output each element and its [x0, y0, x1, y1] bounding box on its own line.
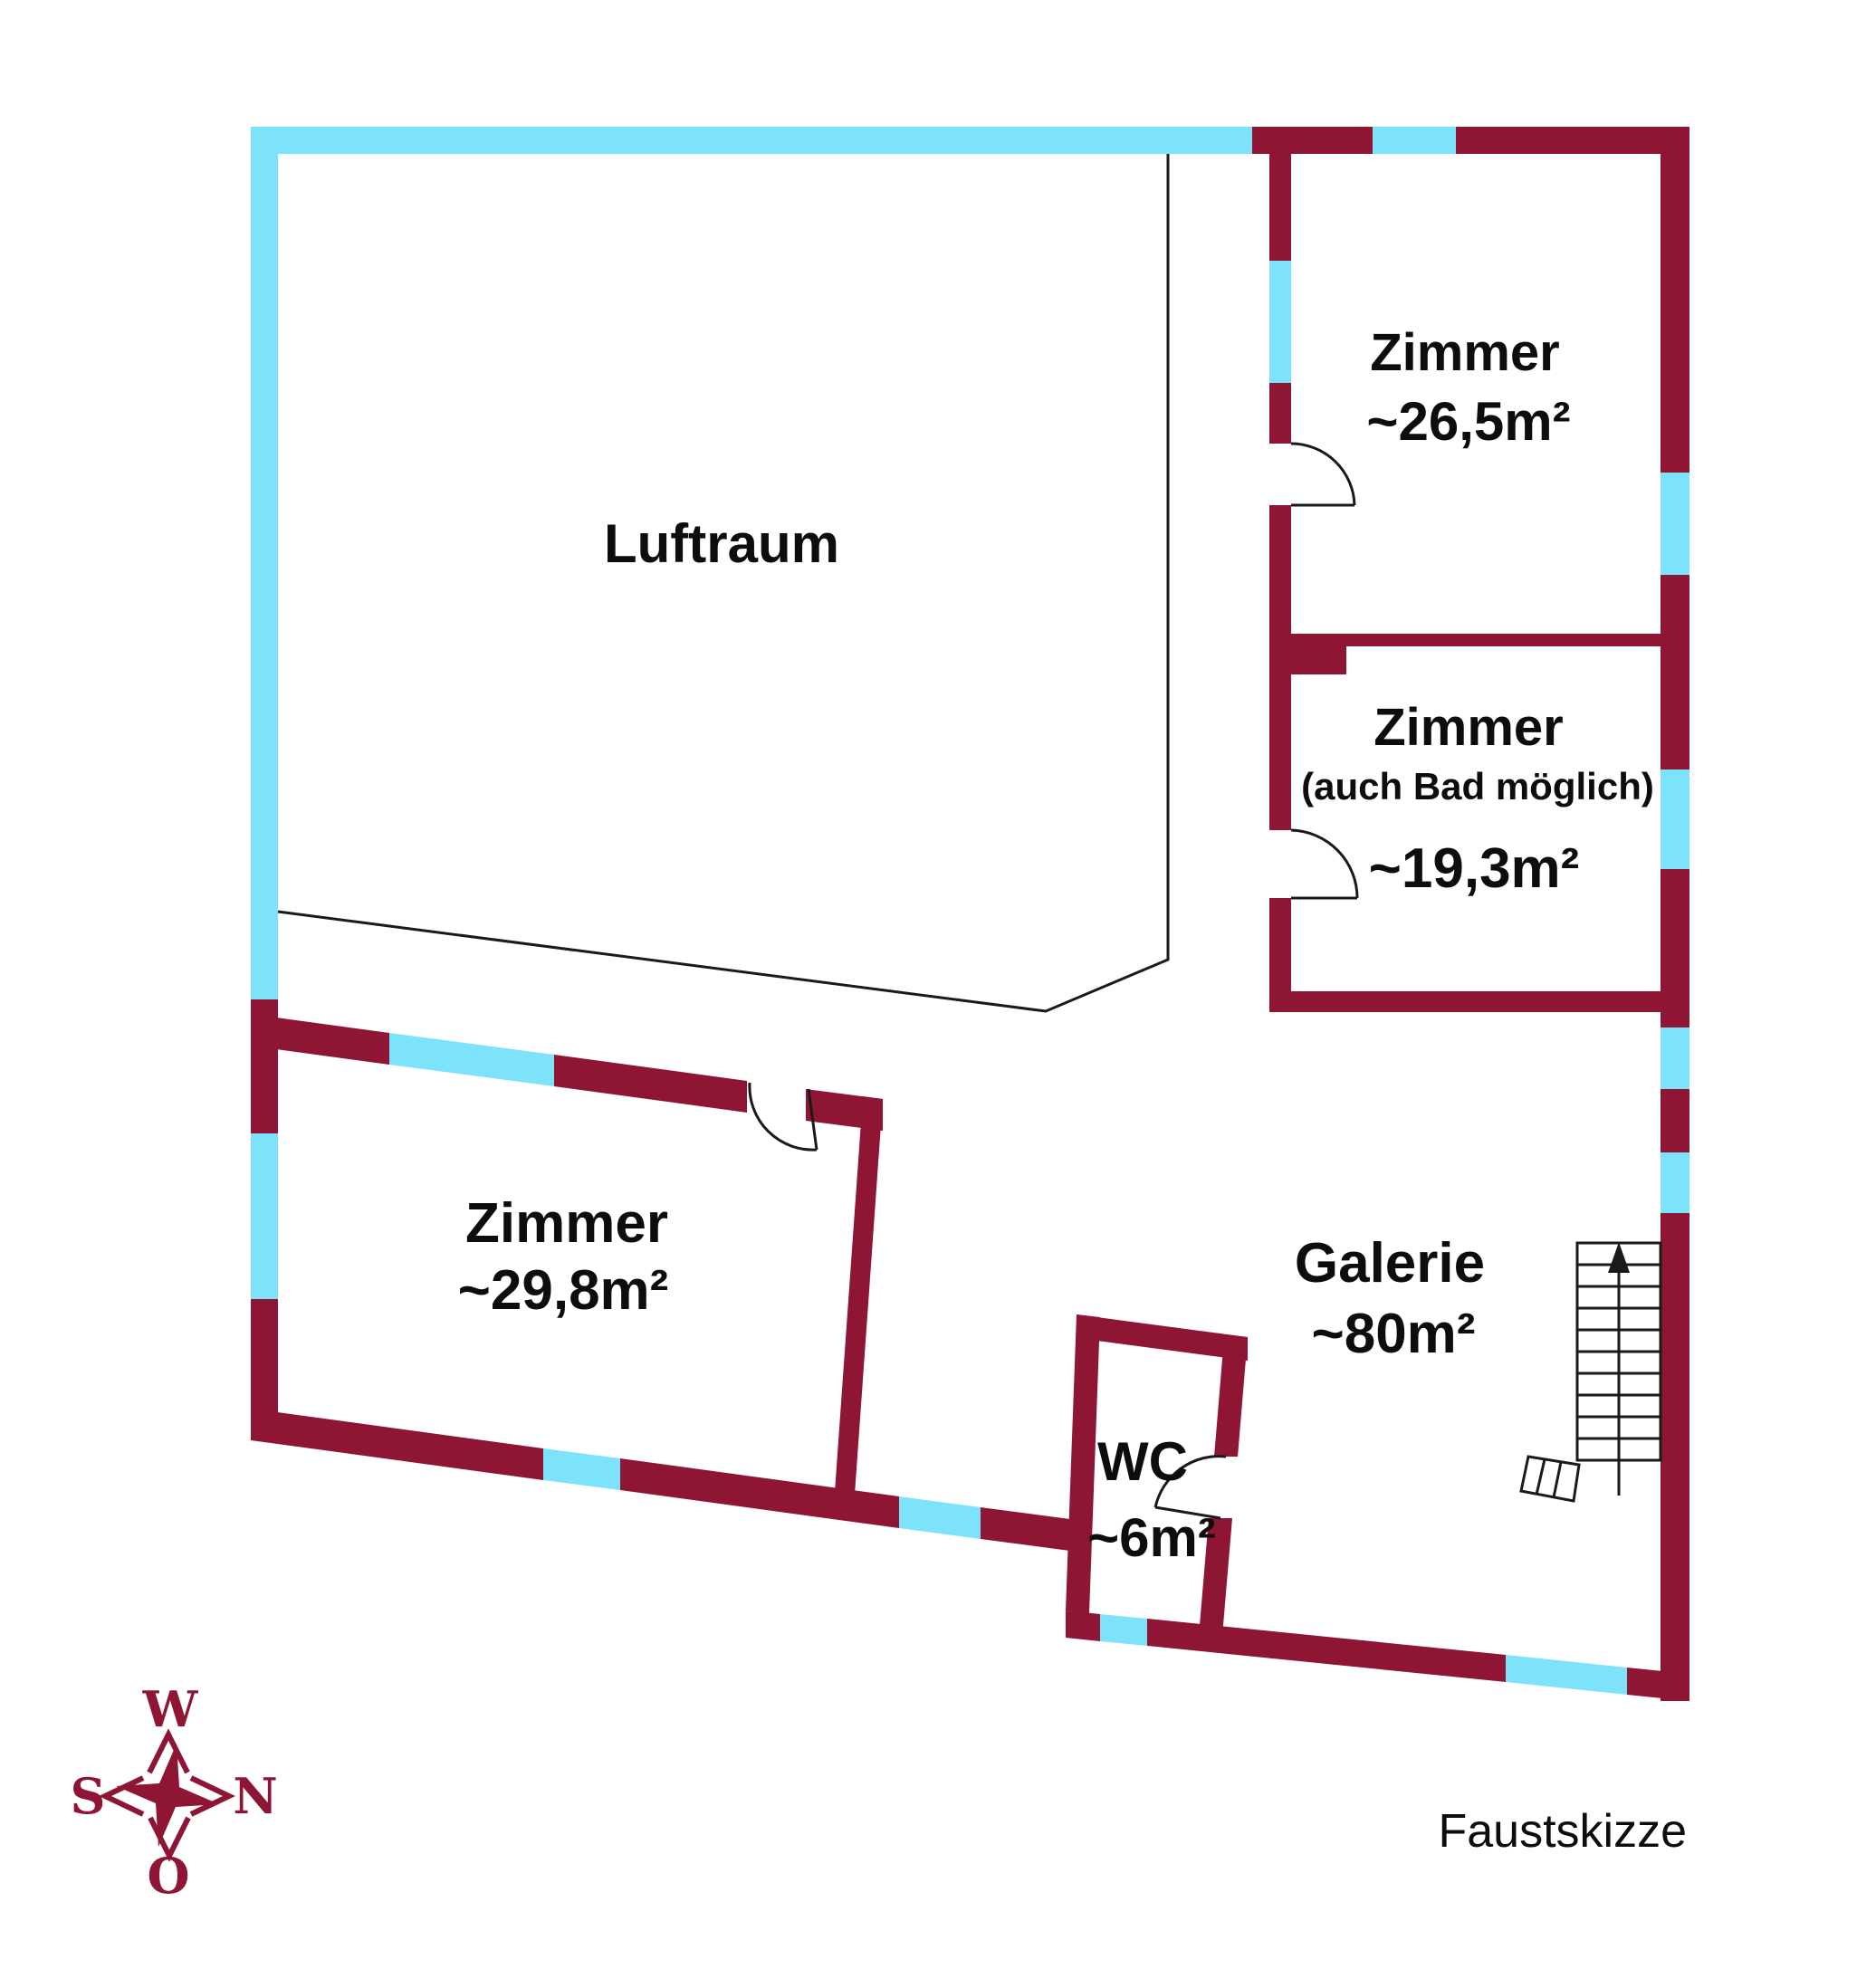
wall-wc-left [1066, 1314, 1100, 1613]
wall-right-5 [1661, 1213, 1689, 1701]
window-right-2 [1661, 769, 1689, 869]
window-entry [899, 1496, 981, 1539]
thin-linework [278, 154, 1357, 1518]
stairs-winder-line-1 [1536, 1459, 1545, 1495]
label-zimmer-nordost-area: ~26,5m² [1366, 391, 1570, 452]
floor-plan-svg: W S N O Luftraum Zimmer ~26,5m² Zimmer (… [0, 0, 1876, 1988]
caption-faustskizze: Faustskizze [1438, 1805, 1687, 1858]
window-top-long [251, 127, 1252, 154]
wall-room-divider-stub [1269, 634, 1346, 674]
window-top-ne [1373, 127, 1456, 154]
window-left-long [251, 127, 278, 999]
wall-top-2 [1456, 127, 1689, 154]
luftraum-outline [278, 154, 1168, 1011]
wall-entry [981, 1507, 1077, 1552]
wall-zimmer-west-bottom-1 [251, 1409, 543, 1480]
label-galerie-name: Galerie [1295, 1232, 1485, 1295]
window-bottom-right [1506, 1655, 1627, 1695]
window-corridor [1269, 261, 1291, 383]
door-arc-zimmer-nordost [1291, 444, 1354, 505]
window-right-4 [1661, 1152, 1689, 1213]
compass-star-icon [116, 1744, 219, 1847]
compass-chevron-left-icon [105, 1778, 143, 1814]
compass-letter-right: N [233, 1767, 277, 1825]
window-zimmer-west-bottom [543, 1448, 620, 1490]
stairs [1521, 1242, 1661, 1501]
label-zimmer-west-name: Zimmer [465, 1192, 668, 1255]
label-zimmer-bad-name: Zimmer [1373, 698, 1564, 757]
wall-right-2 [1661, 575, 1689, 769]
label-galerie-area: ~80m² [1312, 1303, 1476, 1365]
label-zimmer-west-area: ~29,8m² [458, 1259, 669, 1322]
window-zimmer-west-top [389, 1033, 554, 1086]
wall-room-divider [1291, 634, 1661, 646]
stairs-winder-steps [1521, 1457, 1579, 1501]
label-zimmer-bad-note: (auch Bad möglich) [1301, 765, 1654, 808]
wall-zimmer-bad-bottom [1269, 991, 1661, 1012]
window-left-mid [251, 1133, 278, 1299]
compass-letter-bottom: O [147, 1847, 189, 1905]
wall-zimmer-west-top-2 [554, 1055, 747, 1113]
compass-letter-top: W [142, 1680, 199, 1738]
wall-zimmer-west-bottom-2 [620, 1458, 899, 1528]
label-luftraum: Luftraum [604, 513, 839, 574]
wall-right-4 [1661, 1089, 1689, 1152]
label-zimmer-nordost-name: Zimmer [1370, 323, 1560, 382]
window-right-1 [1661, 473, 1689, 575]
window-right-3 [1661, 1027, 1689, 1089]
wall-corridor-1 [1269, 154, 1291, 261]
label-wc-name: WC [1097, 1431, 1188, 1492]
wall-corridor-2 [1269, 383, 1291, 444]
label-zimmer-bad-area: ~19,3m² [1369, 837, 1580, 900]
wall-bottom-2 [1147, 1619, 1506, 1682]
wall-top-1 [1252, 127, 1373, 154]
compass-rose: W S N O [71, 1680, 278, 1905]
wall-right-3 [1661, 869, 1689, 1027]
door-arc-zimmer-bad [1291, 830, 1357, 898]
wall-left-2 [251, 1299, 278, 1412]
wall-wc-top [1077, 1314, 1248, 1361]
window-wc-bottom [1100, 1614, 1147, 1646]
wall-right-1 [1661, 127, 1689, 473]
stairs-up-arrow-icon [1608, 1242, 1630, 1273]
label-wc-area: ~6m² [1087, 1507, 1216, 1568]
compass-letter-left: S [71, 1767, 106, 1825]
room-labels: Luftraum Zimmer ~26,5m² Zimmer (auch Bad… [458, 323, 1654, 1568]
wall-bottom-1 [1066, 1610, 1100, 1641]
floor-plan-page: W S N O Luftraum Zimmer ~26,5m² Zimmer (… [0, 0, 1876, 1988]
stairs-winder-line-2 [1554, 1462, 1561, 1497]
wall-zimmer-west-right [833, 1096, 883, 1520]
